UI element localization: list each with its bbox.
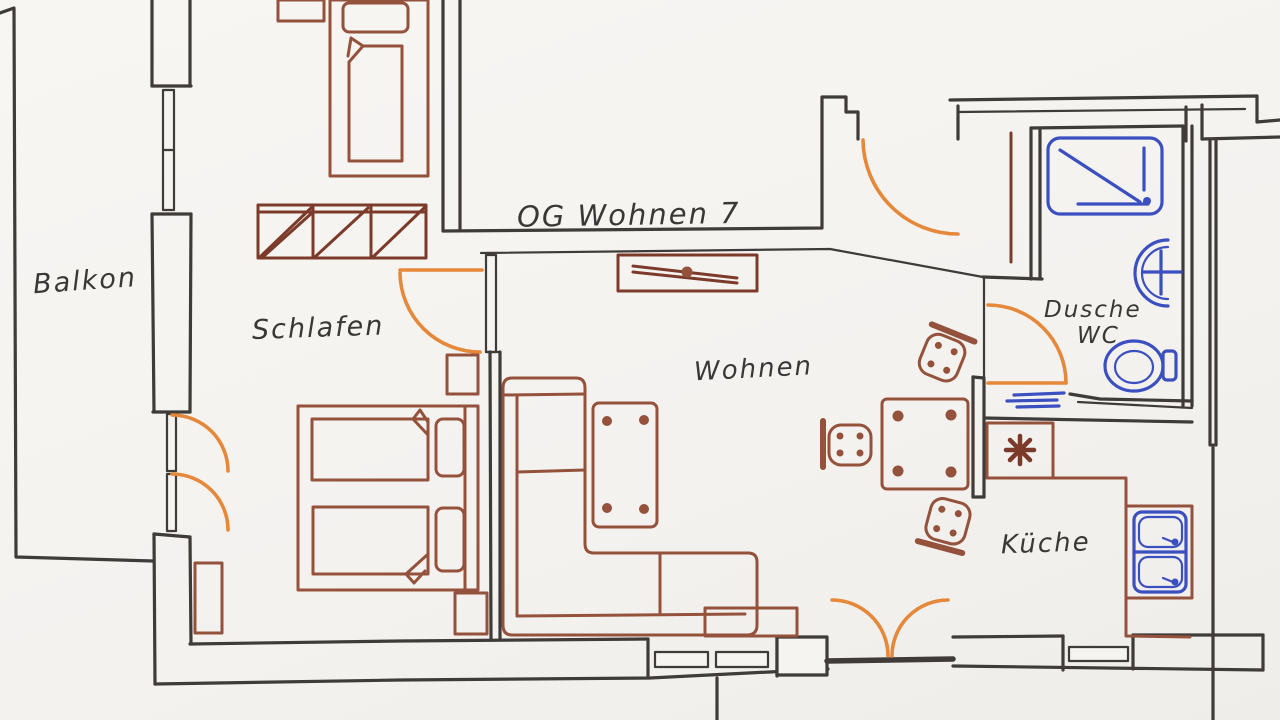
wall-pier-south	[777, 637, 827, 675]
walls	[0, 0, 1280, 720]
bathroom-fixtures	[1007, 133, 1181, 407]
stove	[987, 423, 1053, 478]
bathroom-sink	[1135, 240, 1181, 306]
bench	[705, 608, 797, 636]
bath-mat	[1007, 393, 1064, 407]
coffee-table	[593, 403, 657, 527]
door-threshold	[827, 659, 953, 661]
label-kueche: Küche	[1000, 527, 1091, 560]
dining-table	[882, 399, 968, 489]
kitchen-sink	[1134, 512, 1186, 592]
chair	[823, 421, 871, 467]
nightstand	[278, 0, 324, 21]
french-double-door	[832, 600, 948, 656]
double-bed	[298, 406, 478, 590]
floorplan-drawing: Balkon Schlafen OG Wohnen 7 Wohnen Dusch…	[0, 0, 1280, 720]
wall-shelf	[195, 563, 222, 633]
window-kitchen-south	[1069, 647, 1128, 661]
window-bedroom-west	[163, 90, 174, 210]
nightstand	[455, 593, 487, 634]
label-wohnen: Wohnen	[693, 351, 813, 387]
bedroom-door	[400, 270, 482, 352]
chair	[914, 324, 975, 386]
label-dusche: Dusche	[1044, 297, 1142, 323]
corner-sofa	[503, 378, 757, 635]
window-living-south	[655, 652, 768, 667]
chair	[918, 495, 975, 553]
label-wc: WC	[1077, 323, 1120, 349]
balcony-double-door	[172, 415, 228, 530]
sideboard	[618, 255, 757, 291]
nightstand	[447, 355, 478, 394]
wardrobe	[258, 205, 426, 258]
shower	[1048, 138, 1162, 214]
single-bed	[330, 0, 428, 176]
label-schlafen: Schlafen	[251, 310, 384, 346]
page-title: OG Wohnen 7	[517, 196, 741, 234]
floorplan-page: Balkon Schlafen OG Wohnen 7 Wohnen Dusch…	[0, 0, 1280, 720]
label-balkon: Balkon	[32, 262, 138, 300]
entry-door	[863, 140, 958, 234]
living-furniture	[503, 255, 975, 636]
